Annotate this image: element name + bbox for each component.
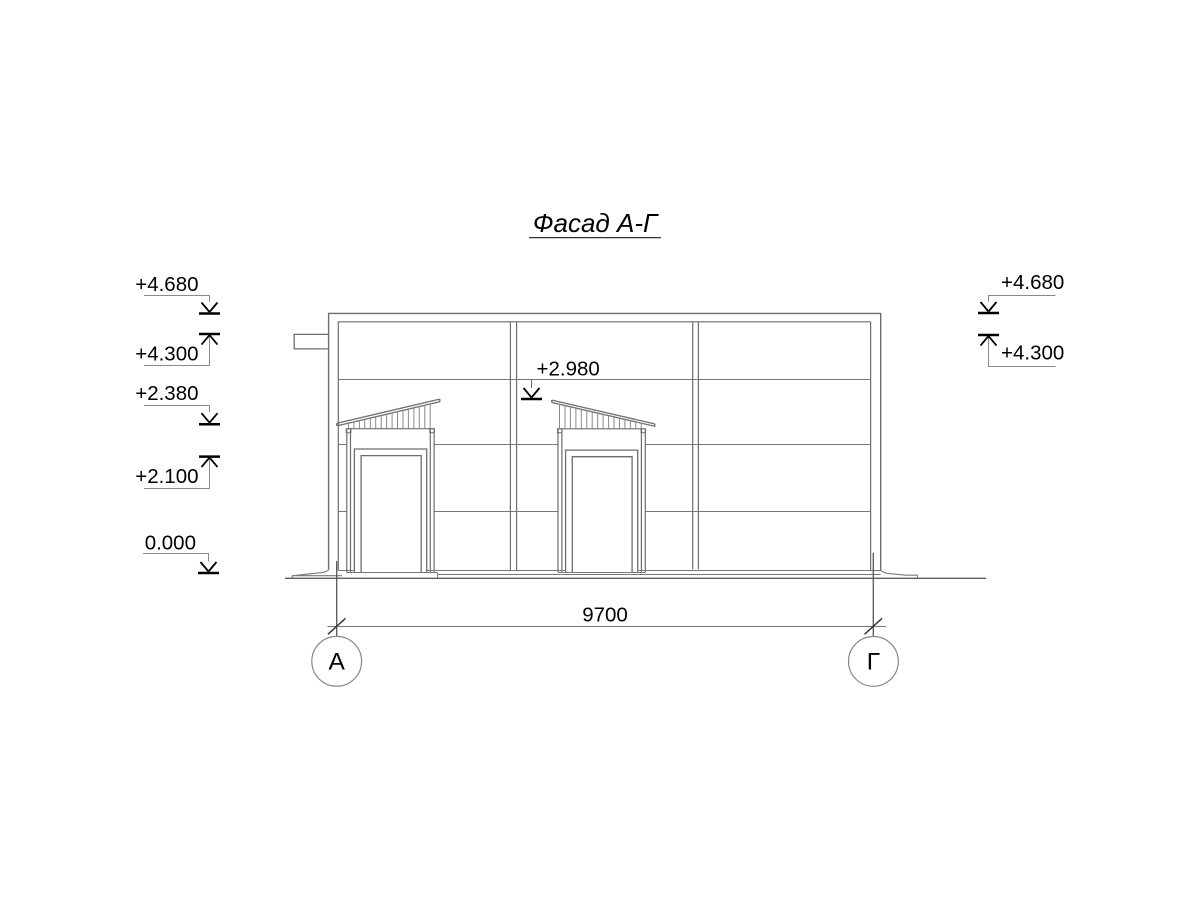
svg-text:+4.680: +4.680 (135, 273, 198, 296)
svg-text:+4.680: +4.680 (1001, 271, 1064, 294)
svg-text:+2.980: +2.980 (537, 358, 600, 381)
svg-text:9700: 9700 (582, 604, 628, 627)
svg-text:+4.300: +4.300 (135, 343, 198, 366)
svg-text:0.000: 0.000 (145, 531, 196, 554)
svg-text:А: А (329, 649, 346, 676)
svg-text:+2.100: +2.100 (135, 465, 198, 488)
svg-text:Г: Г (867, 649, 880, 676)
svg-text:Фасад А-Г: Фасад А-Г (533, 208, 659, 238)
svg-text:+4.300: +4.300 (1001, 342, 1064, 365)
svg-text:+2.380: +2.380 (135, 382, 198, 405)
